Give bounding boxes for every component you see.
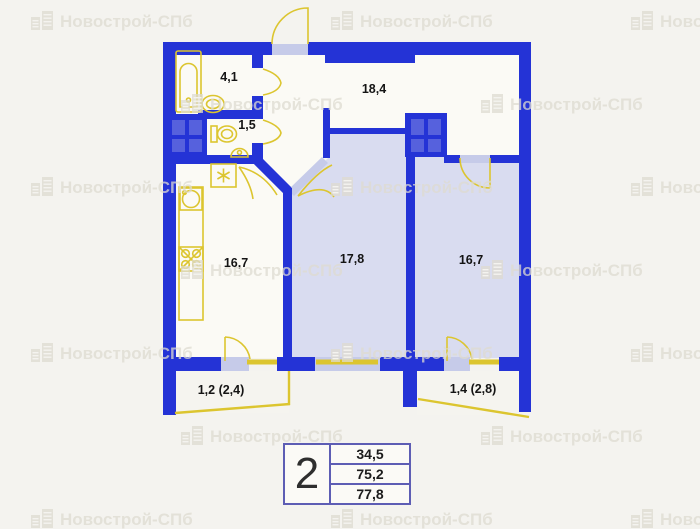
floor-plan-page: 4,1 1,5 18,4 16,7 17,8 16,7 1,2 (2,4) 1,… (0, 0, 700, 526)
room-label-bathroom: 4,1 (220, 70, 237, 84)
room-label-bedroom: 16,7 (459, 253, 483, 267)
vent-shaft-left (166, 114, 207, 158)
entrance-door-arc (272, 8, 308, 44)
room-label-balcony-right: 1,4 (2,8) (450, 382, 497, 396)
bedroom-window (469, 360, 499, 365)
room-label-balcony-left: 1,2 (2,4) (198, 383, 245, 397)
room-label-living-room: 17,8 (340, 252, 364, 266)
summary-table: 2 34,5 75,2 77,8 (283, 443, 411, 505)
total-area-value: 77,8 (331, 483, 409, 503)
room-label-kitchen: 16,7 (224, 256, 248, 270)
rooms-count: 2 (285, 445, 331, 503)
bedroom-balcony-threshold (444, 357, 470, 371)
kitchen-window (247, 360, 277, 365)
area-rows: 34,5 75,2 77,8 (331, 445, 409, 503)
room-label-hallway: 18,4 (362, 82, 386, 96)
living-window (316, 360, 378, 365)
bedroom-door-threshold (460, 155, 490, 163)
room-label-wc: 1,5 (238, 118, 255, 132)
vent-shaft-middle (405, 113, 447, 157)
entrance-threshold (272, 44, 308, 55)
living-area-value: 34,5 (331, 445, 409, 463)
apartment-area-value: 75,2 (331, 463, 409, 483)
